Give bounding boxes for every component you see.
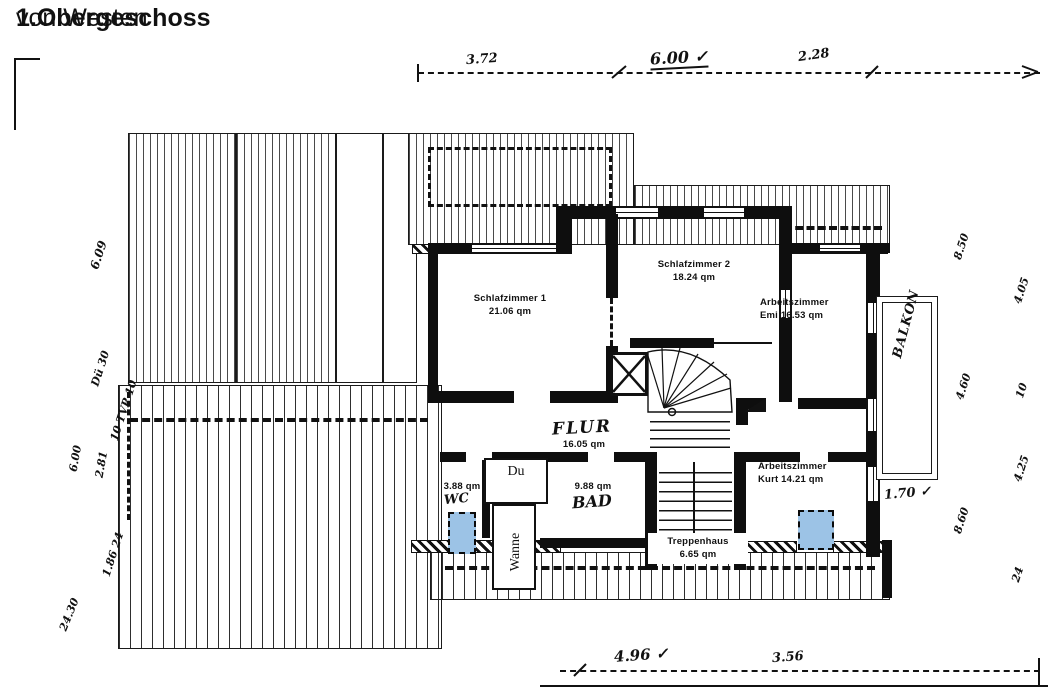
wall-right-exterior-4 — [866, 501, 880, 557]
floorplan-canvas: 1.Obergeschoss von Westen — [0, 0, 1048, 690]
wall-stair-top — [630, 338, 714, 348]
roof-panel-empty-1 — [336, 133, 383, 383]
window-emi — [820, 243, 860, 253]
dim-line-top — [418, 72, 1040, 74]
wall-s2-emi-upper — [779, 206, 792, 290]
schlafzimmer1-area: 21.06 qm — [489, 306, 531, 317]
schlafzimmer2-name: Schlafzimmer 2 — [658, 259, 731, 270]
line-stair-top — [714, 342, 772, 344]
dashed-roofline-dormer-left — [428, 147, 612, 207]
dim-left-2: Dü 30 — [88, 349, 112, 388]
dim-right-4: 10 — [1013, 381, 1030, 400]
dim-right-6: 8.60 — [951, 506, 972, 536]
dim-balkon-width: 1.70 ✓ — [883, 484, 931, 503]
stair-fan-outline — [648, 350, 732, 412]
treppenhaus-name: Treppenhaus — [667, 536, 728, 547]
diag-hatch-bottom-2 — [747, 541, 797, 553]
bathtub-label: Wanne — [508, 532, 524, 572]
wall-stair-left — [645, 452, 657, 538]
room-label-treppenhaus: Treppenhaus 6.65 qm — [648, 533, 748, 564]
dim-right-1: 8.50 — [951, 232, 972, 262]
dim-right-7: 24 — [1009, 565, 1026, 584]
wall-emi-bottom-a — [736, 398, 766, 409]
wall-bottom-right-edge — [882, 540, 892, 598]
stair-steps-lower — [659, 464, 732, 536]
dim-right-5: 4.25 — [1011, 454, 1032, 484]
room-label-arbeitszimmer-emi: Arbeitszimmer Emi 16.53 qm — [760, 296, 870, 323]
page-title-regular: von Westen — [16, 4, 148, 33]
frame-line-bottom-right-v — [1038, 658, 1040, 686]
wall-top-s1-a — [438, 243, 472, 254]
window-s2-1 — [616, 206, 658, 219]
window-s1 — [472, 243, 556, 254]
room-label-bad: BAD — [571, 491, 612, 513]
arbeitszimmer-kurt-name: Arbeitszimmer — [758, 461, 827, 472]
room-label-schlafzimmer2: Schlafzimmer 2 18.24 qm — [628, 258, 760, 285]
room-label-flur: FLUR — [552, 416, 613, 439]
wall-left-exterior — [428, 243, 438, 393]
room-label-schlafzimmer1: Schlafzimmer 1 21.06 qm — [450, 292, 570, 319]
frame-line-top-left-h — [14, 58, 40, 60]
dim-top-3: 2.28 — [797, 46, 830, 65]
dim-line-bottom — [560, 670, 1040, 672]
schlafzimmer2-area: 18.24 qm — [673, 272, 715, 283]
roof-hatch-bottomleft — [118, 385, 442, 649]
diag-hatch-bottom-1 — [411, 540, 561, 553]
wall-emi-bottom-stub — [736, 409, 748, 425]
bathtub-box: Wanne — [492, 504, 536, 590]
dim-left-1: 6.09 — [87, 239, 109, 271]
arbeitszimmer-kurt-area: Kurt 14.21 qm — [758, 474, 823, 485]
wall-emi-bottom-b — [798, 398, 866, 409]
window-marker-blue-1 — [448, 512, 476, 554]
wall-stair-right — [734, 452, 746, 538]
dim-right-2: 4.05 — [1011, 276, 1032, 306]
dim-bottom-2: 3.56 — [772, 649, 805, 666]
wall-s1-s2-dashed — [610, 298, 613, 346]
dim-left-5: 2.81 — [93, 450, 110, 479]
dim-top-1: 3.72 — [466, 51, 499, 68]
wall-top-emi-a — [788, 243, 820, 253]
wall-wc-top-a — [440, 452, 466, 462]
shower-label: Du — [486, 464, 546, 480]
room-label-wc: WC — [443, 491, 469, 509]
wall-bad-top-b — [614, 452, 648, 462]
wall-step — [556, 206, 572, 254]
window-marker-blue-2 — [798, 510, 834, 550]
stair-steps-upper — [650, 414, 730, 450]
wall-s2-emi-lower — [779, 318, 792, 402]
stair-fan-treads — [648, 348, 731, 408]
shower-box: Du — [484, 458, 548, 504]
wall-flur-top-a — [428, 391, 514, 403]
dim-top-2: 6.00 ✓ — [649, 46, 708, 70]
dim-bottom-1: 4.96 ✓ — [613, 644, 668, 666]
dashed-roofline-bottomleft — [130, 418, 428, 422]
dashed-roofline-dormer-right — [784, 226, 882, 230]
wall-s1-s2-upper — [606, 214, 618, 298]
frame-line-bottom — [540, 685, 1048, 687]
wall-flur-top-b — [550, 391, 618, 403]
roof-hatch-topleft-1 — [128, 133, 236, 383]
room-area-flur: 16.05 qm — [552, 438, 616, 451]
dim-left-7: 24.30 — [57, 596, 82, 633]
dim-left-4: 6.00 — [67, 444, 84, 473]
stair-center-rail — [693, 462, 695, 538]
wall-bad-bottom — [540, 538, 650, 548]
frame-line-top-left-v — [14, 58, 16, 130]
roof-hatch-topleft-2 — [236, 133, 336, 383]
schlafzimmer1-name: Schlafzimmer 1 — [474, 293, 547, 304]
arbeitszimmer-emi-name: Arbeitszimmer — [760, 297, 829, 308]
room-label-arbeitszimmer-kurt: Arbeitszimmer Kurt 14.21 qm — [758, 460, 872, 487]
treppenhaus-area: 6.65 qm — [680, 549, 717, 560]
wall-top-s2-b — [658, 206, 704, 219]
chimney-box — [610, 352, 648, 396]
wall-right-exterior-1 — [866, 243, 880, 303]
dim-right-3: 4.60 — [953, 372, 974, 402]
arbeitszimmer-emi-area: Emi 16.53 qm — [760, 310, 823, 321]
window-s2-2 — [704, 206, 744, 219]
